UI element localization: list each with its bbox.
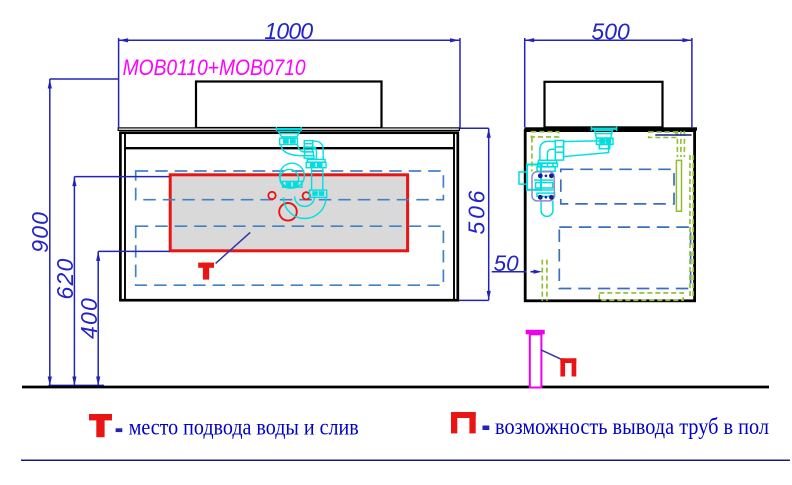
svg-text:1000: 1000 [264, 18, 313, 44]
svg-text:400: 400 [76, 297, 102, 339]
svg-text:900: 900 [27, 211, 53, 253]
svg-text:506: 506 [464, 188, 490, 235]
svg-text:620: 620 [52, 258, 78, 300]
svg-text:500: 500 [591, 18, 630, 44]
svg-text:MOB0110+MOB0710: MOB0110+MOB0710 [123, 55, 306, 80]
svg-text:место подвода воды и слив: место подвода воды и слив [129, 415, 359, 440]
svg-text:возможность вывода труб в пол: возможность вывода труб в пол [495, 414, 769, 439]
